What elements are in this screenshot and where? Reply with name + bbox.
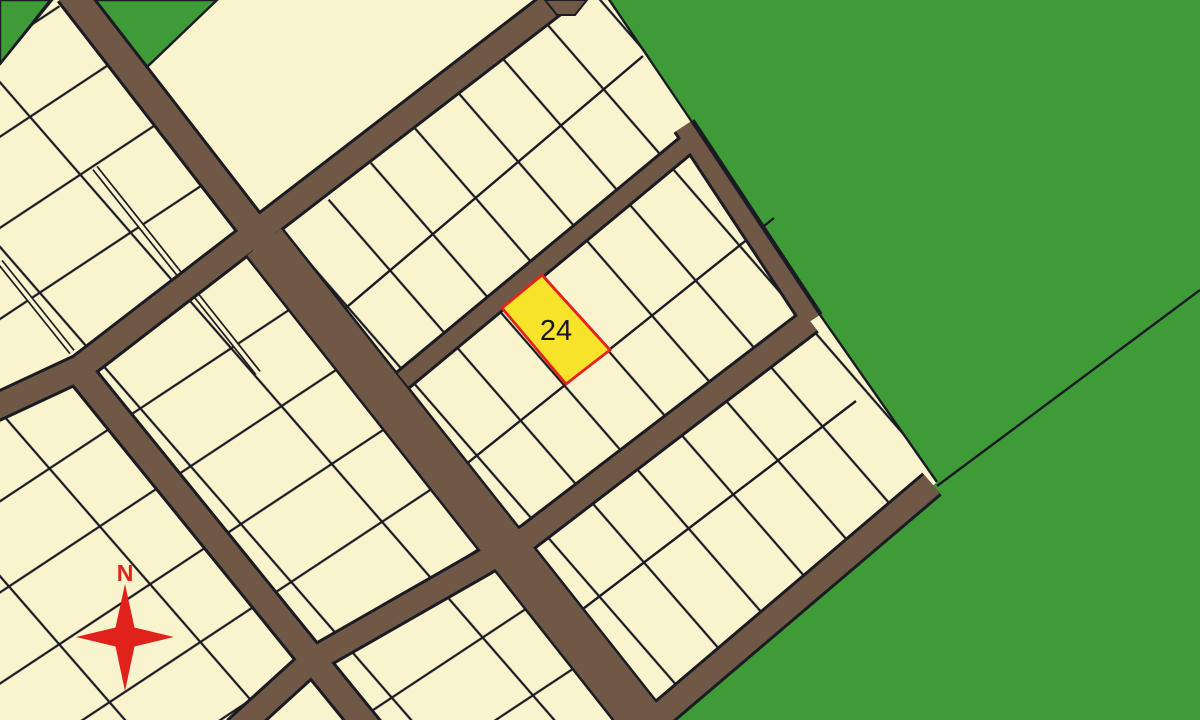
parcel-24-label: 24 [540,315,572,347]
map-viewport[interactable]: 24 N [0,0,1200,720]
plat-map: 24 N [0,0,1200,720]
compass-north-label: N [117,560,134,586]
